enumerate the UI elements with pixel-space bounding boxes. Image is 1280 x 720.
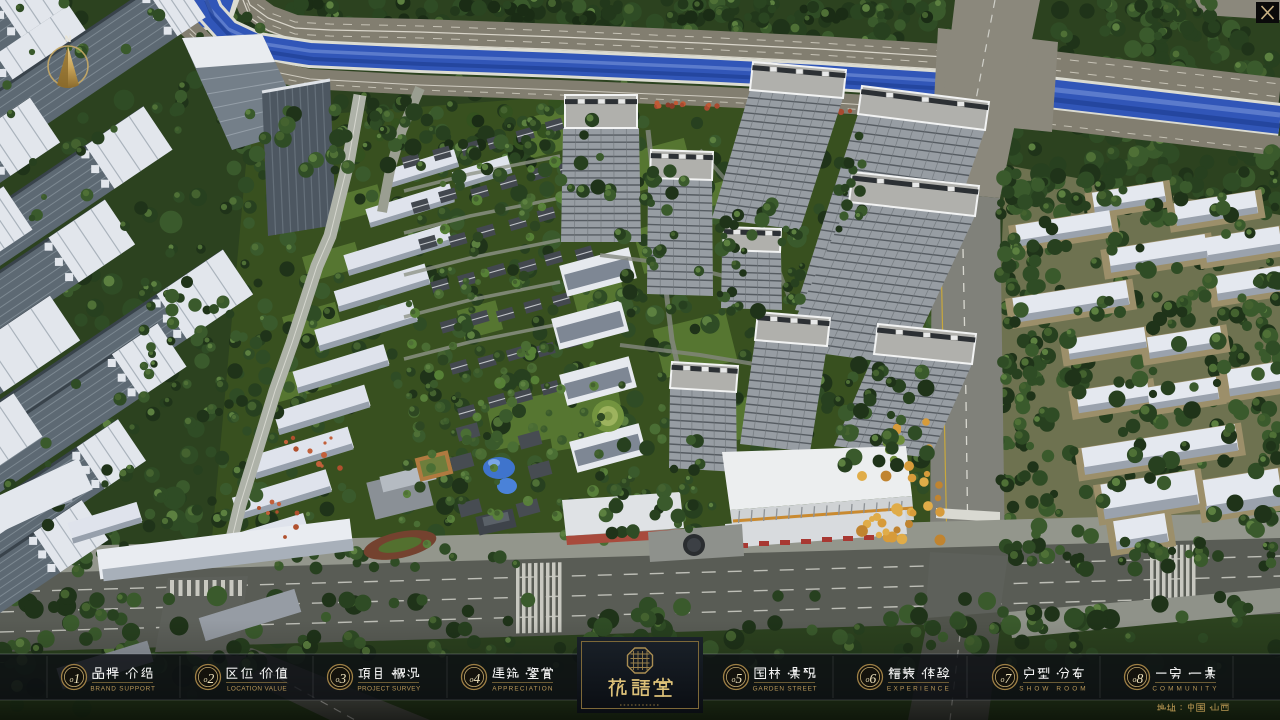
svg-text:N: N	[65, 34, 72, 44]
svg-text:PROJECT SURVEY: PROJECT SURVEY	[357, 686, 421, 693]
svg-text:GARDEN STREET: GARDEN STREET	[753, 686, 818, 693]
svg-text:LOCATION VALUE: LOCATION VALUE	[227, 686, 287, 693]
svg-text:SHOW ROOM: SHOW ROOM	[1019, 686, 1088, 693]
svg-text:BRAND SUPPORT: BRAND SUPPORT	[90, 686, 155, 693]
svg-text:6: 6	[870, 671, 877, 686]
svg-text:1: 1	[74, 671, 81, 686]
svg-text:2: 2	[208, 671, 215, 686]
svg-text:APPRECIATION: APPRECIATION	[492, 686, 554, 693]
svg-text:3: 3	[339, 671, 347, 686]
svg-text:5: 5	[736, 671, 743, 686]
svg-text:EXPERIENCE: EXPERIENCE	[887, 686, 951, 693]
svg-text:8: 8	[1137, 671, 1144, 686]
svg-text:4: 4	[474, 671, 481, 686]
svg-text:COMMUNITY: COMMUNITY	[1152, 686, 1219, 693]
